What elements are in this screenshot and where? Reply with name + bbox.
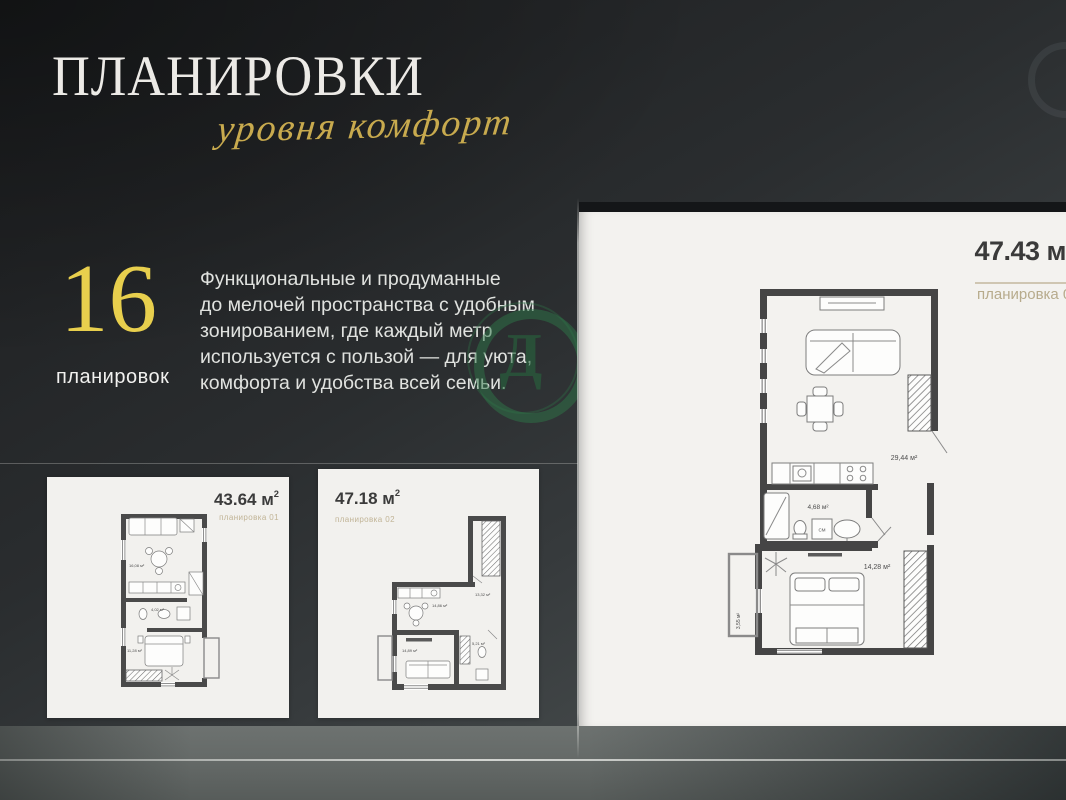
description-line: используется с пользой — для уюта, [200, 344, 535, 370]
description-line: зонированием, где каждый метр [200, 318, 535, 344]
description-line: до мелочей пространства с удобным [200, 292, 535, 318]
wardrobe-bedroom [904, 551, 927, 648]
bed [145, 636, 183, 666]
round-table [409, 606, 423, 620]
plan-large-area-value: 47.43 м [974, 236, 1066, 267]
tv-unit [820, 297, 884, 310]
room-label-kitchen: 14,86 м² [432, 603, 448, 608]
wardrobe-living [908, 375, 931, 431]
shower-zone [460, 636, 470, 664]
plant [765, 552, 787, 576]
plant [165, 667, 179, 680]
room-label-bath: 5,21 м² [472, 641, 486, 646]
room-label-bedroom: 11,28 м² [127, 648, 143, 653]
plan-card-02: 47.18 м2 планировка 02 [318, 469, 539, 718]
hatched-zone [126, 670, 162, 681]
kitchen-counter [398, 588, 440, 598]
toilet [478, 647, 486, 658]
tv-console [406, 638, 432, 642]
room-label-bedroom: 14,28 м² [864, 564, 891, 571]
plan-card-01: 43.64 м2 планировка 01 [47, 477, 289, 718]
kitchen-counter [772, 463, 873, 484]
stat-count: 16 [60, 250, 157, 347]
sofa [806, 330, 900, 375]
toilet [794, 521, 806, 536]
toilet [139, 609, 147, 620]
plan-card-large: 47.43 м планировка 0 [579, 212, 1066, 726]
wardrobe-hall [482, 521, 500, 576]
door-swings [872, 431, 947, 541]
brochure-page-photo: ПЛАНИРОВКИ уровня комфорт 16 планировок … [0, 0, 1066, 800]
room-label-living: 14,89 м² [402, 648, 418, 653]
floorplan-01-drawing: 16,08 м² 4,02 м² 11,28 м² [119, 510, 224, 702]
shelf-edge-line [0, 759, 1066, 761]
bath-sink [834, 520, 860, 538]
description-block: Функциональные и продуманные до мелочей … [200, 266, 535, 396]
bathroom-fixtures [764, 493, 860, 541]
room-label-living: 29,44 м² [891, 455, 918, 462]
balcony [729, 554, 757, 636]
sleeve-edge-line [0, 463, 578, 464]
room-label-hall: 13,32 м² [475, 592, 491, 597]
stat-count-label: планировок [56, 366, 169, 389]
room-label-balcony: 3,55 м² [736, 613, 742, 630]
shelf-shadow-left [0, 726, 1066, 800]
sofa [129, 518, 177, 535]
balcony [378, 636, 392, 680]
dining-table [797, 387, 843, 431]
plan-large-divider [975, 282, 1066, 284]
balcony [204, 638, 219, 678]
floorplan-large-drawing: 29,44 м² 4,68 м² 14,28 м² 3,55 м² СМ [720, 283, 960, 708]
plan-large-label: планировка 0 [977, 286, 1066, 303]
plan-02-area-value: 47.18 м2 [335, 489, 400, 509]
bath-sink [476, 669, 488, 680]
plan-01-area-value: 43.64 м2 [214, 490, 279, 510]
white-page-top-edge [579, 202, 1066, 212]
shelf-strip [0, 726, 1066, 800]
room-label-living: 16,08 м² [129, 563, 145, 568]
washing-machine [177, 607, 190, 620]
kitchen-sink [793, 466, 811, 481]
description-line: Функциональные и продуманные [200, 266, 535, 292]
floorplan-02-drawing: 13,32 м² 14,86 м² 14,89 м² 5,21 м² [376, 512, 533, 694]
bedroom-furniture [765, 552, 864, 645]
bedroom-tv [808, 553, 842, 557]
washer-label: СМ [819, 528, 826, 533]
plan-01-label: планировка 01 [219, 513, 279, 522]
room-label-bath: 4,02 м² [151, 607, 165, 612]
page-title: ПЛАНИРОВКИ [52, 44, 424, 109]
description-line: комфорта и удобства всей семьи. [200, 370, 535, 396]
room-label-bath: 4,68 м² [807, 504, 829, 511]
round-table [151, 551, 167, 567]
